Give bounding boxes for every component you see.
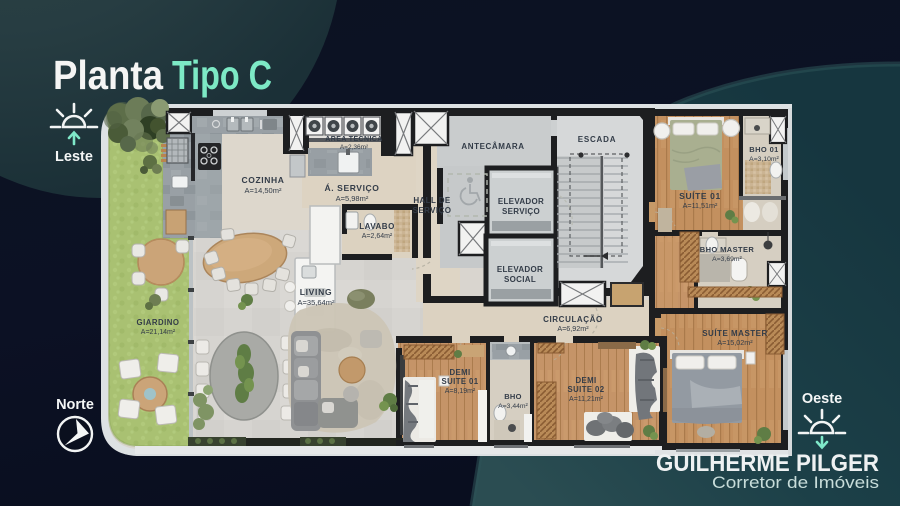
svg-text:DEMI: DEMI (449, 368, 470, 377)
svg-text:LIVING: LIVING (300, 287, 333, 297)
svg-text:A=14,50m²: A=14,50m² (245, 186, 282, 195)
svg-text:Corretor de Imóveis: Corretor de Imóveis (712, 473, 879, 492)
svg-text:A=3,69m²: A=3,69m² (712, 256, 742, 263)
svg-text:A=2,36m²: A=2,36m² (340, 144, 369, 151)
svg-text:SUÍTE 01: SUÍTE 01 (679, 191, 721, 201)
svg-text:HALL DE: HALL DE (413, 196, 451, 205)
svg-text:SUÍTE MASTER: SUÍTE MASTER (702, 329, 768, 338)
svg-text:Tipo C: Tipo C (172, 52, 272, 98)
svg-text:BHO: BHO (504, 392, 522, 401)
svg-text:ÁREA TÉCNICA: ÁREA TÉCNICA (325, 134, 382, 143)
svg-text:ESCADA: ESCADA (578, 135, 617, 144)
svg-text:LAVABO: LAVABO (359, 222, 395, 231)
svg-text:SOCIAL: SOCIAL (504, 275, 536, 284)
svg-text:A=3,44m²: A=3,44m² (498, 403, 528, 410)
svg-text:SUITE 01: SUITE 01 (442, 377, 479, 386)
svg-text:GIARDINO: GIARDINO (137, 318, 180, 327)
svg-text:A=2,64m²: A=2,64m² (362, 233, 393, 240)
svg-text:A=5,98m²: A=5,98m² (336, 194, 369, 203)
svg-text:DEMI: DEMI (575, 376, 596, 385)
svg-text:A=11,51m²: A=11,51m² (683, 201, 718, 210)
svg-text:Leste: Leste (55, 149, 93, 165)
svg-text:A=6,92m²: A=6,92m² (557, 324, 589, 333)
svg-text:Norte: Norte (56, 397, 94, 413)
svg-text:A=21,14m²: A=21,14m² (141, 329, 176, 336)
svg-text:ELEVADOR: ELEVADOR (498, 197, 544, 206)
svg-text:SERVIÇO: SERVIÇO (413, 206, 452, 215)
svg-text:ELEVADOR: ELEVADOR (497, 265, 543, 274)
svg-text:A=15,02m²: A=15,02m² (717, 338, 753, 347)
svg-text:CIRCULAÇÃO: CIRCULAÇÃO (543, 315, 603, 324)
svg-text:COZINHA: COZINHA (242, 175, 285, 185)
svg-text:Oeste: Oeste (802, 391, 842, 407)
svg-text:SUITE 02: SUITE 02 (568, 385, 605, 394)
svg-text:Planta: Planta (53, 52, 164, 98)
svg-text:A=8,19m²: A=8,19m² (445, 388, 476, 395)
svg-text:Á. SERVIÇO: Á. SERVIÇO (325, 183, 380, 193)
svg-text:BHO MASTER: BHO MASTER (700, 245, 755, 254)
svg-text:A=3,10m²: A=3,10m² (749, 156, 779, 163)
svg-text:A=35,64m²: A=35,64m² (298, 298, 335, 307)
svg-text:ANTECÂMARA: ANTECÂMARA (461, 142, 524, 151)
svg-text:SERVIÇO: SERVIÇO (502, 207, 540, 216)
svg-text:BHO 01: BHO 01 (749, 145, 779, 154)
svg-text:A=11,21m²: A=11,21m² (569, 396, 604, 403)
